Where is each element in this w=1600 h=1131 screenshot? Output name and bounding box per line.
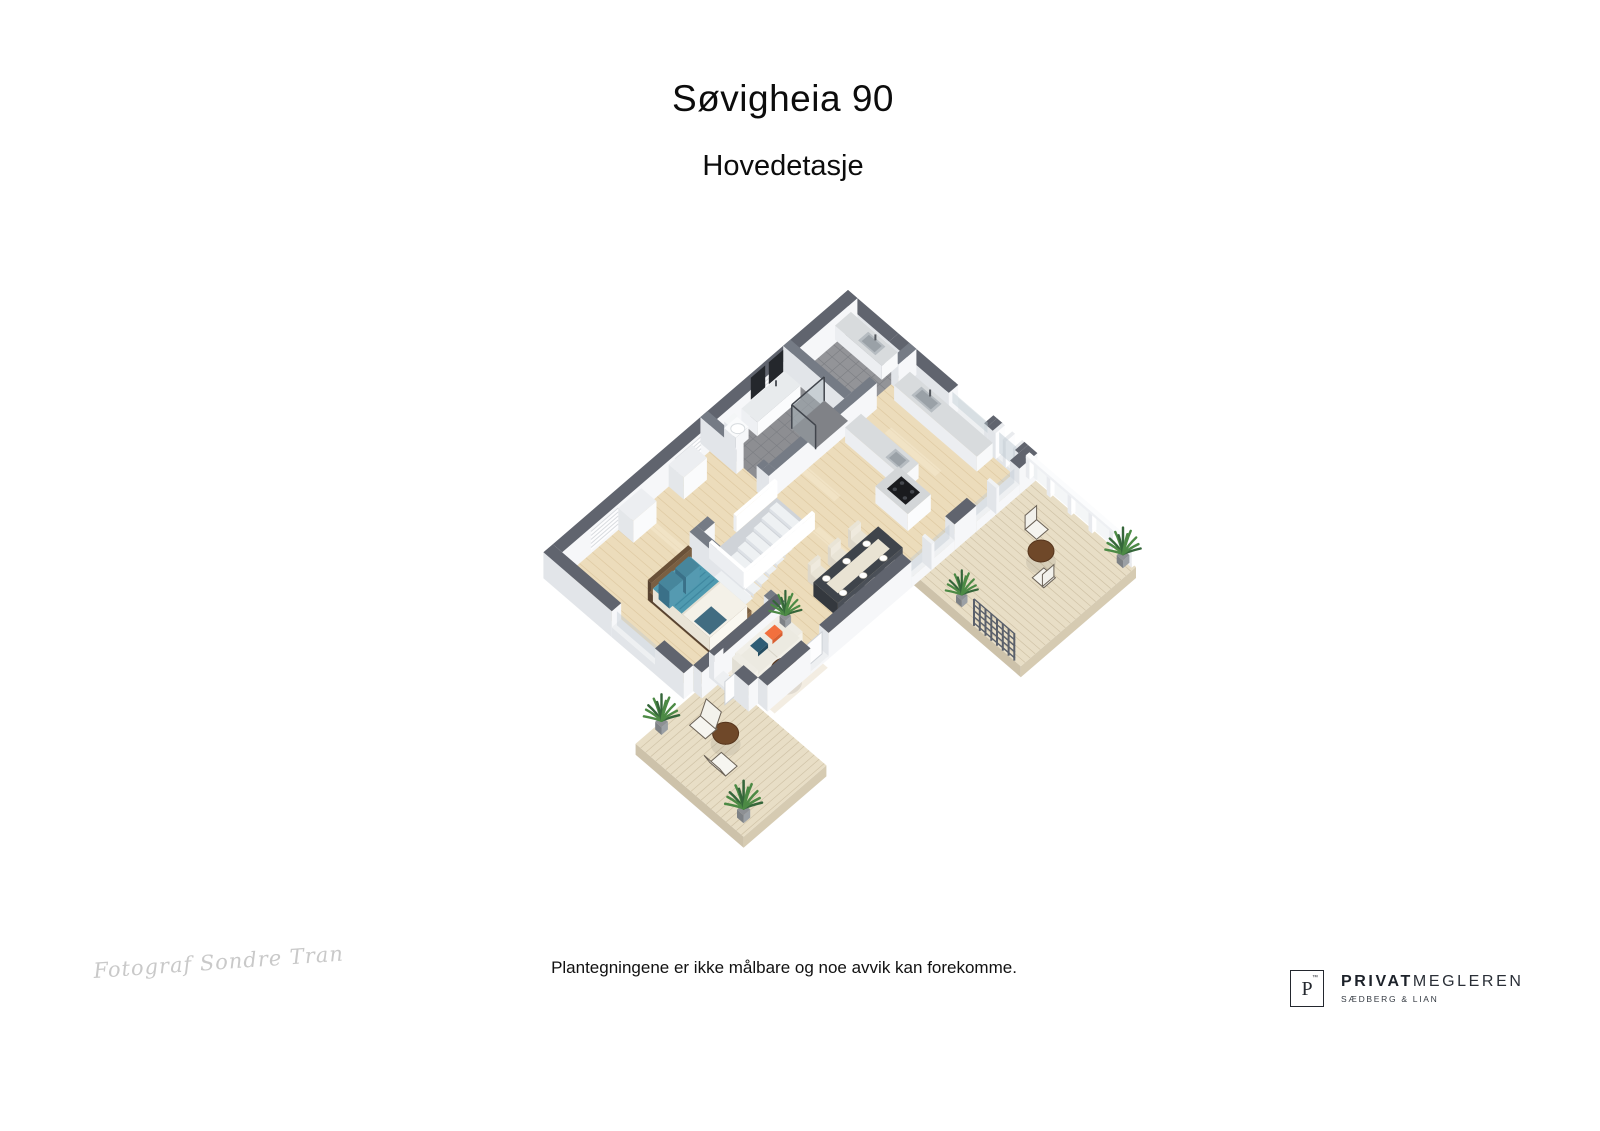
brand-p-letter: P <box>1301 979 1312 999</box>
brand-name-bold: PRIVAT <box>1341 973 1413 990</box>
brand-p-icon: P ™ <box>1290 970 1324 1007</box>
brand-name: PRIVATMEGLEREN <box>1341 973 1524 991</box>
brand-text: PRIVATMEGLEREN SÆDBERG & LIAN <box>1341 970 1524 1004</box>
brand-subname: SÆDBERG & LIAN <box>1341 994 1524 1004</box>
brand-name-light: MEGLEREN <box>1413 973 1524 990</box>
brand-trademark: ™ <box>1312 975 1318 981</box>
page: Søvigheia 90 Hovedetasje Fotograf Sondre… <box>0 0 1600 1131</box>
brand-logo: P ™ PRIVATMEGLEREN SÆDBERG & LIAN <box>1290 970 1524 1007</box>
